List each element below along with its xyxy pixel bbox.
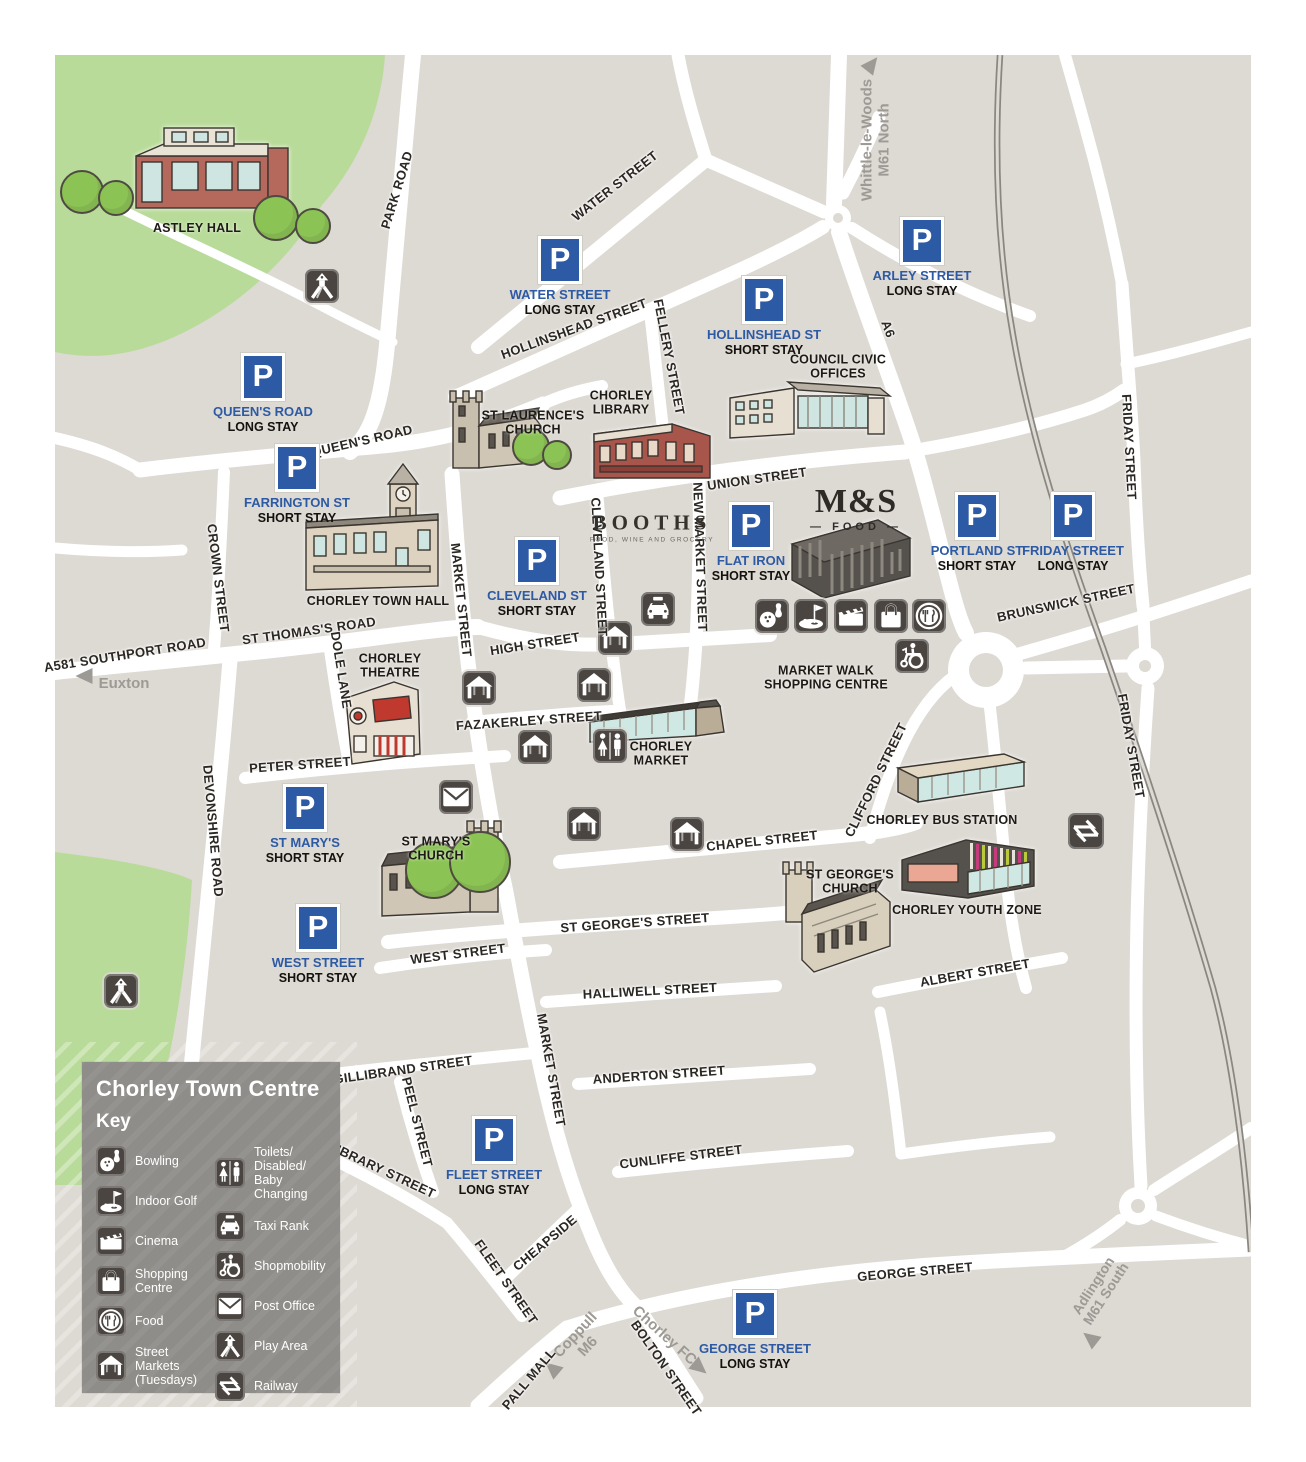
parking-icon: P <box>729 502 773 550</box>
parking-stay: LONG STAY <box>183 420 343 434</box>
bowling-icon <box>96 1146 126 1176</box>
play-area-icon <box>104 974 138 1008</box>
indoor-golf-icon <box>794 599 828 633</box>
chorley-library-building <box>588 416 716 486</box>
tree <box>295 208 331 244</box>
parking-icon: P <box>515 537 559 585</box>
parking-sign-fleet-street: P FLEET STREET LONG STAY <box>414 1116 574 1197</box>
parking-sign-friday-street: P FRIDAY STREET LONG STAY <box>993 492 1153 573</box>
council-civic-offices-building <box>724 372 896 450</box>
food-icon <box>912 599 946 633</box>
key-label: Play Area <box>254 1339 308 1353</box>
key-subtitle: Key <box>96 1111 328 1133</box>
parking-name: WEST STREET <box>238 956 398 970</box>
parking-name: WATER STREET <box>480 288 640 302</box>
landmark-label-astley-hall: ASTLEY HALL <box>153 221 241 235</box>
parking-stay: SHORT STAY <box>684 343 844 357</box>
key-label: Bowling <box>135 1154 179 1168</box>
chorley-youth-zone-building <box>894 834 1042 904</box>
parking-stay: LONG STAY <box>414 1183 574 1197</box>
key-label: Indoor Golf <box>135 1194 197 1208</box>
parking-name: FARRINGTON ST <box>217 496 377 510</box>
key-label: Railway <box>254 1379 298 1393</box>
parking-name: FLAT IRON <box>671 554 831 568</box>
parking-icon: P <box>241 353 285 401</box>
parking-sign-george-street: P GEORGE STREET LONG STAY <box>675 1290 835 1371</box>
key-row-railway: Railway <box>215 1370 328 1401</box>
key-row-food: Food <box>96 1305 209 1336</box>
parking-stay: LONG STAY <box>842 284 1002 298</box>
taxi-rank-icon <box>215 1211 245 1241</box>
key-label: Toilets/ Disabled/ Baby Changing <box>254 1145 328 1201</box>
post-office-icon <box>439 780 473 814</box>
key-row-indoor-golf: Indoor Golf <box>96 1185 209 1216</box>
parking-name: GEORGE STREET <box>675 1342 835 1356</box>
key-row-shopping-centre: Shopping Centre <box>96 1265 209 1296</box>
tree <box>98 180 134 216</box>
landmark-label-chorley-library: CHORLEY LIBRARY <box>590 389 653 418</box>
parking-sign-west-street: P WEST STREET SHORT STAY <box>238 904 398 985</box>
parking-stay: LONG STAY <box>993 559 1153 573</box>
cinema-icon <box>834 599 868 633</box>
key-label: Post Office <box>254 1299 315 1313</box>
post-office-icon <box>215 1291 245 1321</box>
parking-sign-hollinshead-st: P HOLLINSHEAD ST SHORT STAY <box>684 276 844 357</box>
street-market-icon <box>518 730 552 764</box>
shopping-centre-icon <box>96 1266 126 1296</box>
landmark-label-st-marys: ST MARY'S CHURCH <box>402 835 471 864</box>
shopmobility-icon <box>895 639 929 673</box>
street-markets-icon <box>96 1351 126 1381</box>
railway-icon <box>215 1371 245 1401</box>
parking-icon: P <box>538 236 582 284</box>
parking-name: FLEET STREET <box>414 1168 574 1182</box>
cinema-icon <box>96 1226 126 1256</box>
parking-name: ST MARY'S <box>225 836 385 850</box>
parking-sign-flat-iron: P FLAT IRON SHORT STAY <box>671 502 831 583</box>
food-icon <box>96 1306 126 1336</box>
parking-icon: P <box>733 1290 777 1338</box>
landmark-label-market-walk: MARKET WALK SHOPPING CENTRE <box>764 664 888 693</box>
parking-name: HOLLINSHEAD ST <box>684 328 844 342</box>
key-label: Food <box>135 1314 164 1328</box>
chorley-bus-station-building <box>888 746 1032 810</box>
parking-stay: SHORT STAY <box>457 604 617 618</box>
key-row-street-markets: Street Markets (Tuesdays) <box>96 1345 209 1387</box>
key-label: Cinema <box>135 1234 178 1248</box>
key-row-taxi-rank: Taxi Rank <box>215 1210 328 1241</box>
arrow-euxton-icon <box>76 668 93 684</box>
landmark-label-chorley-theatre: CHORLEY THEATRE <box>359 652 422 681</box>
parking-icon: P <box>742 276 786 324</box>
map-key-panel: Chorley Town Centre Key Bowling Indoor G… <box>82 1062 340 1393</box>
landmark-label-st-georges: ST GEORGE'S CHURCH <box>806 868 894 897</box>
parking-name: ARLEY STREET <box>842 269 1002 283</box>
key-row-bowling: Bowling <box>96 1145 209 1176</box>
parking-stay: SHORT STAY <box>238 971 398 985</box>
shopmobility-icon <box>215 1251 245 1281</box>
tree <box>253 195 299 241</box>
parking-icon: P <box>900 217 944 265</box>
chorley-town-centre-map: { "map_title": "Chorley Town Centre", "p… <box>0 0 1306 1462</box>
landmark-label-town-hall: CHORLEY TOWN HALL <box>307 594 450 608</box>
taxi-rank-icon <box>641 592 675 626</box>
key-row-play-area: Play Area <box>215 1330 328 1361</box>
landmark-label-youth-zone: CHORLEY YOUTH ZONE <box>892 903 1042 917</box>
parking-stay: SHORT STAY <box>217 511 377 525</box>
toilets-icon <box>593 729 627 763</box>
parking-stay: SHORT STAY <box>671 569 831 583</box>
street-market-icon <box>577 668 611 702</box>
bowling-icon <box>755 599 789 633</box>
street-market-icon <box>567 807 601 841</box>
key-label: Shopmobility <box>254 1259 326 1273</box>
play-area-icon <box>215 1331 245 1361</box>
landmark-label-st-laurences: ST LAURENCE'S CHURCH <box>482 409 585 438</box>
parking-name: QUEEN'S ROAD <box>183 405 343 419</box>
landmark-label-bus-station: CHORLEY BUS STATION <box>866 813 1017 827</box>
parking-stay: LONG STAY <box>480 303 640 317</box>
parking-sign-cleveland-st: P CLEVELAND ST SHORT STAY <box>457 537 617 618</box>
tree <box>542 440 572 470</box>
parking-sign-arley-street: P ARLEY STREET LONG STAY <box>842 217 1002 298</box>
key-row-cinema: Cinema <box>96 1225 209 1256</box>
key-label: Street Markets (Tuesdays) <box>135 1345 209 1387</box>
play-area-icon <box>305 269 339 303</box>
parking-sign-queens-road: P QUEEN'S ROAD LONG STAY <box>183 353 343 434</box>
parking-stay: SHORT STAY <box>225 851 385 865</box>
parking-icon: P <box>472 1116 516 1164</box>
parking-stay: LONG STAY <box>675 1357 835 1371</box>
tree <box>60 170 104 214</box>
direction-whittle-le-woods: Whittle-le-Woods M61 North <box>860 79 893 201</box>
key-row-post-office: Post Office <box>215 1290 328 1321</box>
key-label: Shopping Centre <box>135 1267 188 1295</box>
parking-icon: P <box>296 904 340 952</box>
parking-icon: P <box>275 444 319 492</box>
toilets-icon <box>215 1158 245 1188</box>
direction-euxton: Euxton <box>99 676 150 693</box>
parking-sign-st-marys: P ST MARY'S SHORT STAY <box>225 784 385 865</box>
key-title: Chorley Town Centre <box>96 1076 328 1102</box>
street-market-icon <box>462 671 496 705</box>
parking-sign-water-street: P WATER STREET LONG STAY <box>480 236 640 317</box>
indoor-golf-icon <box>96 1186 126 1216</box>
key-label: Taxi Rank <box>254 1219 309 1233</box>
street-market-icon <box>670 817 704 851</box>
parking-icon: P <box>1051 492 1095 540</box>
parking-icon: P <box>283 784 327 832</box>
key-row-toilets: Toilets/ Disabled/ Baby Changing <box>215 1145 328 1201</box>
parking-sign-farrington-st: P FARRINGTON ST SHORT STAY <box>217 444 377 525</box>
shopping-centre-icon <box>874 599 908 633</box>
railway-station-icon <box>1068 813 1104 849</box>
key-row-shopmobility: Shopmobility <box>215 1250 328 1281</box>
parking-name: FRIDAY STREET <box>993 544 1153 558</box>
parking-name: CLEVELAND ST <box>457 589 617 603</box>
landmark-label-chorley-market: CHORLEY MARKET <box>630 740 693 769</box>
